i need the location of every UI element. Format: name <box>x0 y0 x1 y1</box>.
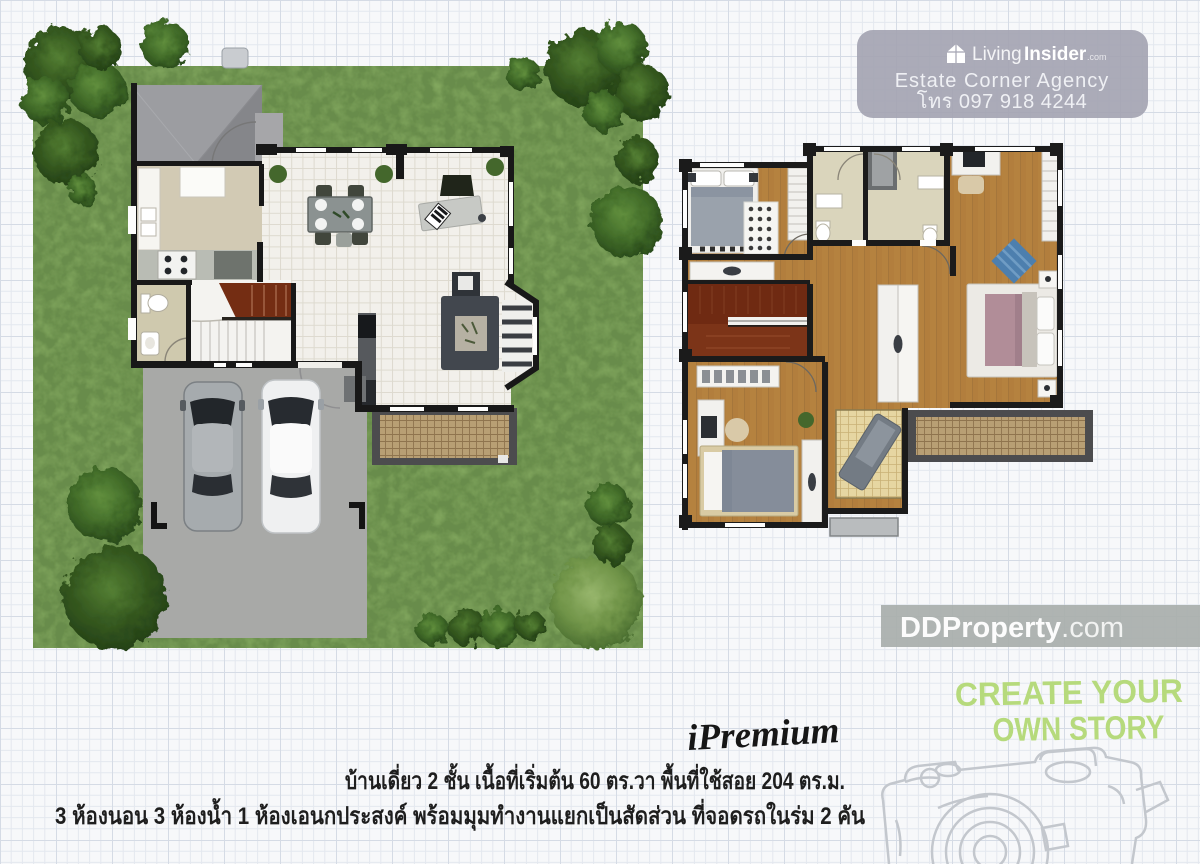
svg-text:Living: Living <box>972 44 1022 65</box>
svg-text:Estate Corner Agency: Estate Corner Agency <box>895 70 1110 92</box>
svg-text:Insider: Insider <box>1024 44 1087 65</box>
svg-text:3 ห้องนอน 3 ห้องน้ำ 1 ห้องเอนก: 3 ห้องนอน 3 ห้องน้ำ 1 ห้องเอนกประสงค์ พร… <box>55 797 866 832</box>
svg-text:CREATE YOUR: CREATE YOUR <box>955 672 1184 713</box>
svg-text:iPremium: iPremium <box>686 710 840 759</box>
svg-text:DDProperty.com: DDProperty.com <box>900 612 1124 644</box>
svg-text:.com: .com <box>1087 52 1107 62</box>
svg-text:โทร 097 918 4244: โทร 097 918 4244 <box>917 90 1088 113</box>
svg-text:OWN STORY: OWN STORY <box>992 708 1165 748</box>
